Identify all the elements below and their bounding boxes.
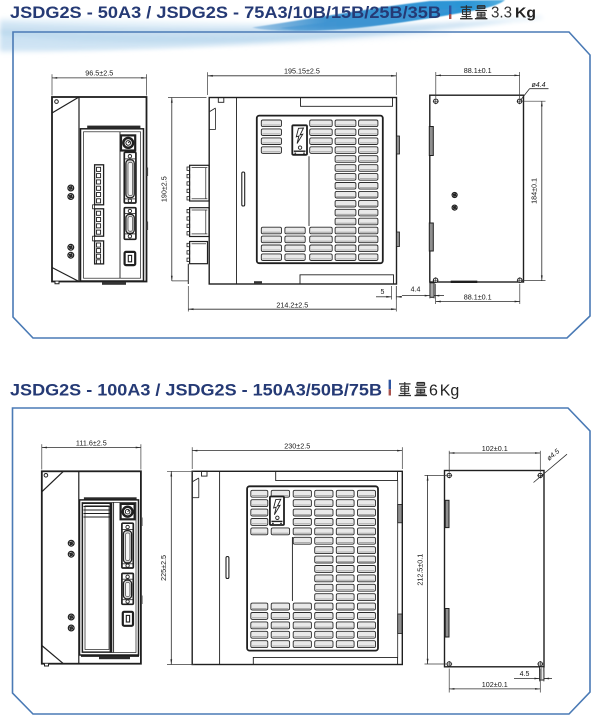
svg-text:5: 5 — [381, 289, 385, 296]
svg-text:102±0.1: 102±0.1 — [482, 444, 508, 453]
svg-text:Kg: Kg — [515, 5, 536, 22]
svg-text:JSDG2S - 50A3 / JSDG2S - 75A3/: JSDG2S - 50A3 / JSDG2S - 75A3/10B/15B/25… — [10, 3, 441, 22]
svg-text:4.5: 4.5 — [520, 671, 530, 678]
svg-text:111.6±2.5: 111.6±2.5 — [76, 438, 107, 447]
svg-text:214.2±2.5: 214.2±2.5 — [276, 300, 308, 309]
svg-text:195.15±2.5: 195.15±2.5 — [284, 67, 320, 76]
svg-text:3.3: 3.3 — [491, 5, 512, 22]
svg-text:6: 6 — [429, 382, 438, 399]
svg-text:Kg: Kg — [440, 382, 460, 399]
svg-text:88.1±0.1: 88.1±0.1 — [464, 293, 492, 302]
svg-text:JSDG2S - 100A3 / JSDG2S - 150A: JSDG2S - 100A3 / JSDG2S - 150A3/50B/75B — [10, 380, 382, 399]
svg-text:88.1±0.1: 88.1±0.1 — [464, 66, 492, 75]
svg-text:102±0.1: 102±0.1 — [482, 680, 508, 689]
svg-text:96.5±2.5: 96.5±2.5 — [85, 69, 113, 78]
svg-text:4.4: 4.4 — [411, 286, 421, 293]
svg-text:225±2.5: 225±2.5 — [159, 555, 168, 581]
svg-text:184±0.1: 184±0.1 — [530, 178, 539, 204]
svg-text:190±2.5: 190±2.5 — [159, 176, 168, 202]
svg-text:ø4.4: ø4.4 — [531, 82, 545, 89]
svg-text:212.5±0.1: 212.5±0.1 — [415, 554, 424, 586]
svg-text:230±2.5: 230±2.5 — [284, 441, 310, 450]
